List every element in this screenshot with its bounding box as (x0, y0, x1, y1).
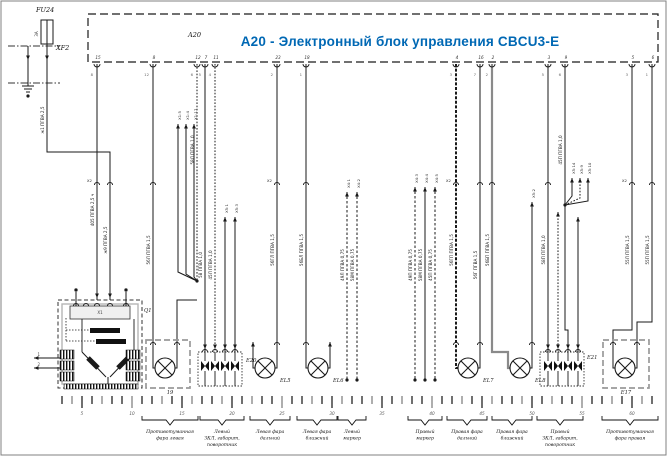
arrow-up-icon (251, 342, 255, 347)
bracket-label: ЗКЛ, габарит, (204, 435, 240, 442)
wiring-diagram-page: A20 A20 - Электронный блок управления CB… (0, 0, 667, 456)
wire-spec-label: 56ГП ПГВА 1,5 (449, 234, 454, 266)
pin-number: 23 (275, 55, 281, 60)
bracket-label: Правая фара (450, 428, 483, 435)
arrow-down-icon (223, 345, 227, 350)
bracket-label: маркер (416, 437, 434, 442)
arrow-down-icon (546, 345, 550, 350)
arrow-up-icon (423, 187, 427, 192)
relay-left-pin-2: 2 (37, 362, 40, 367)
bracket-label: поворотник (207, 443, 237, 448)
wire (275, 64, 277, 368)
relay-contact-strip (126, 350, 140, 359)
bracket-label: Левый (343, 429, 360, 435)
wire-spec-label: 45П ПГВА 1,0 (558, 135, 563, 165)
led-cluster-left-ref: E20 (245, 358, 257, 364)
led-icon (568, 361, 572, 371)
pin-sub-label: 8 (91, 72, 94, 77)
pin-number: 12 (195, 55, 201, 60)
arrow-up-icon (556, 212, 560, 217)
arrow-down-icon (576, 345, 580, 350)
wire-spec-label: 49Л ПГВА 0,75 (340, 249, 345, 281)
ruler-tick (261, 396, 262, 404)
harness-connector-label: Х2 (87, 178, 93, 183)
wire-spec-label: ж1 ПГВА 2,5 (40, 106, 45, 134)
wire-spec-label: 45П ПГВА 0,75 (428, 249, 433, 281)
led-icon (554, 361, 558, 371)
wire (635, 64, 652, 368)
ruler-tick (401, 396, 402, 404)
arrow-up-icon (355, 192, 359, 197)
pin-sub-label: 12 (144, 72, 149, 77)
wire-spec-label: 58П ПГВА 1,0 (541, 235, 546, 265)
ruler-tick (331, 396, 332, 408)
ruler-tick (381, 396, 382, 408)
arrow-terminal-label: X4:2 (356, 179, 361, 188)
pin-sub-label: 2 (486, 72, 489, 77)
ruler-number: 10 (129, 411, 135, 416)
arrow-down-icon (26, 56, 30, 61)
ruler-tick (141, 396, 142, 404)
pin-number: 16 (478, 55, 484, 60)
lamp-cross (158, 361, 172, 375)
arrow-terminal-label: X5:3 (234, 204, 239, 213)
ruler-tick (651, 396, 652, 404)
wire-spec-label: 56БП ПГВА 1,5 (485, 234, 490, 266)
arrow-terminal-label: X4:3 (414, 174, 419, 183)
relay-resistor (96, 339, 126, 344)
pin-sub-label: 6 (191, 72, 194, 77)
wire-spec-label: 405 ПГВА 2,5 ч (90, 193, 95, 226)
wire-spec-label: ж9 ПГВА 2,5 (103, 226, 108, 254)
arrow-up-icon (530, 202, 534, 207)
led-icon (211, 361, 215, 371)
a20-block-ref: A20 (187, 31, 201, 39)
wire (82, 319, 134, 352)
relay-contact-strip (60, 350, 74, 359)
ruler-tick (211, 396, 212, 404)
pin-sub-label: 5 (199, 72, 202, 77)
ruler-tick (441, 396, 442, 404)
bracket-label: Правый (549, 429, 569, 435)
lamp-cross (258, 361, 272, 375)
relay-contact-strip (126, 372, 140, 381)
ruler-tick (301, 396, 302, 404)
ruler-tick (561, 396, 562, 404)
ruler-tick (101, 396, 102, 404)
pin-number: 9 (565, 55, 568, 60)
wire (565, 205, 568, 352)
wire-spec-label: 58 ПГВА 1,0 (198, 252, 203, 278)
ruler-tick (111, 396, 112, 404)
ruler-tick (591, 396, 592, 404)
wire-spec-label: 56БЛ ПГВА 1,5 (299, 234, 304, 266)
arrow-up-icon (192, 124, 196, 129)
ruler-tick (571, 396, 572, 404)
bracket-label: Левый (213, 429, 230, 435)
bracket-label: фара левая (156, 435, 184, 442)
ruler-tick (191, 396, 192, 404)
arrow-terminal-label: X5:1 (224, 204, 229, 213)
arrow-down-icon (108, 294, 112, 299)
ruler-tick (251, 396, 252, 404)
junction-dot (124, 288, 127, 291)
arrow-terminal-label: X4:4 (424, 174, 429, 183)
wire-spec-label: 56ГЛ ПГВА 1,5 (270, 234, 275, 266)
ruler-tick (291, 396, 292, 404)
bracket-label: ближний (501, 435, 524, 442)
headlamp-low-left-ref: EL6 (332, 378, 344, 384)
ruler-tick (371, 396, 372, 404)
bracket-label: Правая фара (495, 428, 528, 435)
headlamp-high-left-ref: EL5 (279, 378, 291, 384)
led-icon (225, 361, 229, 371)
arrow-terminal-label: X4:5 (434, 174, 439, 183)
wire (613, 64, 632, 368)
ruler-tick (131, 396, 132, 408)
fuse-value: 3А (34, 31, 39, 37)
ruler-tick (541, 396, 542, 404)
bracket-label: ближний (306, 435, 329, 442)
relay-resistor (90, 328, 120, 333)
wire (492, 64, 510, 368)
pin-number: 15 (95, 55, 101, 60)
arrow-up-icon (223, 217, 227, 222)
junction-dot (423, 378, 426, 381)
led-icon (544, 361, 548, 371)
ruler-tick (481, 396, 482, 408)
pin-sub-label: 3 (450, 72, 453, 77)
bracket-label: Правый (414, 429, 434, 435)
ruler-tick (171, 396, 172, 404)
ruler-tick (281, 396, 282, 408)
pin-sub-label: 7 (474, 72, 477, 77)
relay-contact-strip (126, 361, 140, 370)
pin-number: 7 (205, 55, 208, 60)
ruler-tick (391, 396, 392, 404)
pin-number: 4 (456, 55, 459, 60)
headlamp-high-right-ref: EL7 (482, 378, 494, 384)
relay-contact-strip (60, 372, 74, 381)
led-icon (574, 361, 578, 371)
ruler-tick (421, 396, 422, 404)
ruler-tick (431, 396, 432, 408)
ruler-tick (231, 396, 232, 408)
arrow-left-icon (34, 356, 39, 360)
ruler-tick (271, 396, 272, 404)
wire (175, 300, 197, 368)
led-icon (215, 361, 219, 371)
ruler-tick (521, 396, 522, 404)
arrow-up-icon (570, 178, 574, 183)
arrow-up-icon (233, 217, 237, 222)
junction-dot (26, 94, 29, 97)
bracket-label: Левая фара (302, 428, 332, 435)
ground-symbol (22, 82, 34, 92)
led-icon (221, 361, 225, 371)
component-refs: 19 E20 EL5 EL6 EL7 EL8 E21 E17 (167, 355, 632, 396)
a20-ecu-block: A20 A20 - Электронный блок управления CB… (88, 14, 658, 62)
wire-spec-label: 55Л ПГВА 1,5 (625, 235, 630, 265)
bracket (297, 416, 337, 425)
connector-xf2-label: XF2 (55, 44, 69, 52)
ruler-tick (611, 396, 612, 404)
pin-number: 11 (213, 55, 219, 60)
pin-number: 18 (304, 55, 310, 60)
arrow-terminal-label: X5:14 (571, 162, 576, 174)
ruler-tick (71, 396, 72, 404)
ruler-number: 20 (229, 411, 235, 416)
junction-dot (74, 288, 77, 291)
ruler-tick (161, 396, 162, 404)
arrow-terminal-label: X5:2 (531, 189, 536, 198)
ruler-tick (341, 396, 342, 404)
fog-lamp-left-ref: 19 (167, 390, 174, 396)
wire (47, 44, 110, 300)
relay-ref: Q1 (144, 308, 152, 314)
arrow-terminal-label: X5:9 (579, 165, 584, 174)
junction-dot (413, 378, 416, 381)
junction-dot (345, 378, 348, 381)
bracket-label: Противотуманная (145, 429, 194, 435)
arrow-terminal-label: X1:4 (185, 111, 190, 120)
generated-schematic: Х2Х2Х2Х215881212675114232181431672235965… (8, 44, 658, 448)
arrow-up-icon (576, 217, 580, 222)
ruler-number: 60 (629, 411, 635, 416)
arrow-down-icon (213, 345, 217, 350)
bracket-label: дальний (260, 436, 280, 442)
arrow-terminal-label: X5:10 (587, 162, 592, 174)
led-cluster-right-ref: E21 (586, 355, 597, 361)
arrow-terminal-label: X1:17 (193, 108, 198, 120)
harness-connector-label: Х2 (622, 178, 628, 183)
arrow-up-icon (176, 124, 180, 129)
fog-lamp-right-box (603, 340, 649, 388)
ruler-tick (181, 396, 182, 408)
bracket (447, 416, 487, 425)
pin-number: 6 (652, 55, 655, 60)
led-icon (205, 361, 209, 371)
relay-connector-label: Х1 (97, 310, 103, 315)
ruler-tick (121, 396, 122, 404)
ruler-tick (621, 396, 622, 404)
arrow-up-icon (345, 192, 349, 197)
lamp-cross (461, 361, 475, 375)
ruler-number: 45 (479, 411, 485, 416)
bracket-label: Противотуманная (605, 429, 654, 435)
fuse-fu24: FU24 3А XF2 (34, 6, 69, 52)
wire-spec-label: 58Л ПГВА 1,0 (190, 135, 195, 165)
bracket-label: маркер (343, 437, 361, 442)
arrow-up-icon (433, 187, 437, 192)
ruler-tick (241, 396, 242, 404)
ruler-number: 5 (81, 411, 84, 416)
bracket-label: Левая фара (255, 428, 285, 435)
wire-spec-label: 58М ПГВА 0,75 (418, 248, 423, 281)
bracket-label: ЗКЛ, габарит, (542, 435, 578, 442)
pin-sub-label: 1 (300, 72, 303, 77)
wire-spec-label: 49П ПГВА 0,75 (408, 249, 413, 281)
ruler-tick (471, 396, 472, 404)
wiring-diagram: A20 A20 - Электронный блок управления CB… (0, 0, 667, 456)
ruler-number: 25 (279, 411, 285, 416)
arrow-left-icon (34, 366, 39, 370)
ruler-number: 30 (329, 411, 335, 416)
arrow-up-icon (328, 342, 332, 347)
page-title: A20 - Электронный блок управления CBCU3-… (241, 34, 560, 49)
led-icon (564, 361, 568, 371)
ruler-tick (601, 396, 602, 404)
led-icon (231, 361, 235, 371)
harness-connector-label: Х2 (267, 178, 273, 183)
ruler-number: 55 (579, 411, 585, 416)
junction-dot (563, 203, 566, 206)
led-icon (548, 361, 552, 371)
bracket (200, 416, 244, 425)
fog-lamp-right-ref: E17 (620, 390, 632, 396)
wire-spec-label: 56Л ПГВА 1,5 (146, 235, 151, 265)
ruler-tick (641, 396, 642, 404)
ruler-number: 15 (179, 411, 185, 416)
bracket (537, 416, 583, 425)
ruler-tick (321, 396, 322, 404)
ruler-tick (551, 396, 552, 404)
relay-bottom-strip (64, 384, 138, 389)
arrow-terminal-label: X4:1 (346, 179, 351, 188)
led-icon (578, 361, 582, 371)
pin-number: 2 (492, 55, 495, 60)
ruler-tick (361, 396, 362, 404)
arrow-up-icon (578, 178, 582, 183)
arrow-down-icon (566, 345, 570, 350)
wire (306, 64, 308, 368)
pin-sub-label: 1 (646, 72, 649, 77)
ruler-tick (531, 396, 532, 408)
ruler-tick (351, 396, 352, 404)
wire (153, 64, 155, 368)
wire-spec-label: 55П ПГВА 1,5 (645, 235, 650, 265)
arrow-down-icon (95, 294, 99, 299)
relay-contact-strip (60, 361, 74, 370)
ruler-tick (81, 396, 82, 408)
fuse-label: FU24 (35, 6, 54, 14)
led-icon (558, 361, 562, 371)
bracket (492, 416, 532, 425)
ruler-tick (91, 396, 92, 404)
ruler-tick (61, 396, 62, 404)
ruler-tick (151, 396, 152, 404)
bracket (602, 416, 658, 425)
arrow-down-icon (203, 345, 207, 350)
ruler-tick (221, 396, 222, 404)
bracket (408, 416, 442, 425)
ruler-tick (511, 396, 512, 404)
bracket-label: поворотник (545, 443, 575, 448)
ruler-tick (491, 396, 492, 404)
wire (88, 358, 98, 368)
arrow-down-icon (233, 345, 237, 350)
ruler-tick (311, 396, 312, 404)
pin-sub-label: 6 (559, 72, 562, 77)
junction-dot (433, 378, 436, 381)
lamp-cross (311, 361, 325, 375)
pin-number: 5 (632, 55, 635, 60)
ruler-tick (501, 396, 502, 404)
wire-spec-label: 56Г ПГВА 1,5 (473, 250, 478, 279)
relay-left-pin-1: 1 (37, 352, 40, 357)
pin-sub-label: 3 (626, 72, 629, 77)
arrow-terminal-label: X1:5 (177, 111, 182, 120)
ruler-tick (201, 396, 202, 404)
ruler-number: 35 (379, 411, 385, 416)
pin-sub-label: 4 (209, 72, 212, 77)
wire (456, 64, 458, 368)
pin-number: 8 (153, 55, 156, 60)
bracket (250, 416, 290, 425)
arrow-up-icon (184, 124, 188, 129)
arrow-up-icon (586, 178, 590, 183)
pin-sub-label: 5 (542, 72, 545, 77)
junction-dot (355, 378, 358, 381)
bracket (142, 416, 198, 425)
pin-sub-label: 2 (271, 72, 274, 77)
ruler-number: 50 (529, 411, 535, 416)
wire-spec-label: 45Л ПГВА 1,0 (208, 250, 213, 280)
ruler-tick (631, 396, 632, 408)
pin-number: 3 (548, 55, 551, 60)
harness-connector-label: Х2 (446, 178, 452, 183)
ruler-tick (581, 396, 582, 408)
led-icon (235, 361, 239, 371)
ruler-tick (411, 396, 412, 404)
lamp-cross (513, 361, 527, 375)
junction-dot (195, 279, 198, 282)
ruler-tick (461, 396, 462, 404)
bracket-label: фара правая (615, 435, 646, 442)
wire-spec-label: 58М ПГВА 0,75 (350, 248, 355, 281)
ruler-number: 40 (429, 411, 435, 416)
lamp-cross (618, 361, 632, 375)
ruler-tick (451, 396, 452, 404)
arrow-up-icon (413, 187, 417, 192)
arrow-down-icon (556, 345, 560, 350)
wire (478, 64, 480, 368)
bracket-label: дальний (457, 436, 477, 442)
bracket (338, 416, 366, 425)
led-icon (201, 361, 205, 371)
